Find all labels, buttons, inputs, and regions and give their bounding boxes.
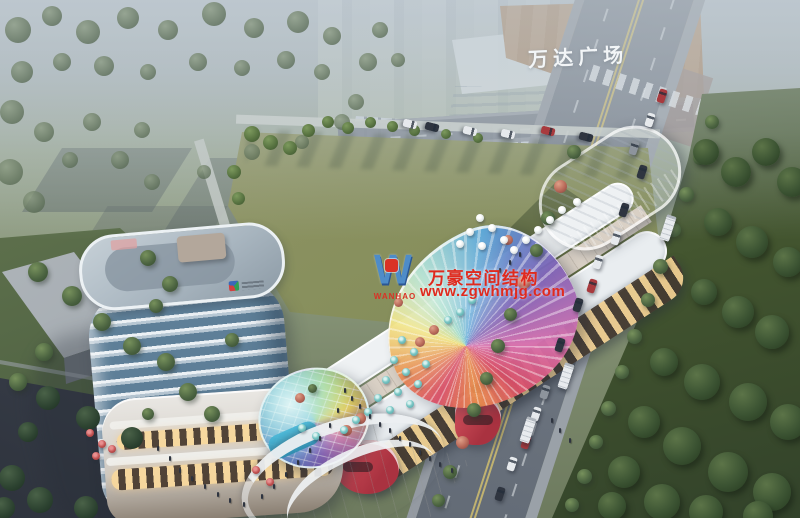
tree <box>93 313 111 331</box>
tree <box>608 456 640 488</box>
tree <box>601 401 616 416</box>
person-dot <box>329 423 332 428</box>
tree <box>467 403 481 417</box>
tree <box>567 145 581 159</box>
car <box>554 337 566 353</box>
tree <box>162 276 178 292</box>
person-dot <box>569 438 572 443</box>
tree <box>491 339 505 353</box>
umbrella <box>386 406 394 414</box>
watermark-url: www.zgwhmjg.com <box>420 283 565 300</box>
tree <box>372 22 388 38</box>
tree <box>225 333 239 347</box>
tree <box>359 53 377 71</box>
umbrella <box>406 400 414 408</box>
tree <box>197 165 211 179</box>
tree <box>314 64 330 80</box>
tree <box>365 117 376 128</box>
umbrella <box>456 308 464 316</box>
person-dot <box>261 494 264 499</box>
tree <box>23 191 45 213</box>
tree <box>348 94 364 110</box>
tree <box>391 53 405 67</box>
umbrella <box>390 356 398 364</box>
car <box>644 112 656 128</box>
tree <box>62 286 82 306</box>
tree <box>121 427 143 449</box>
umbrella <box>298 424 306 432</box>
tree <box>729 383 767 421</box>
person-dot <box>439 462 442 467</box>
tree <box>111 151 129 169</box>
tree <box>777 167 800 197</box>
tree <box>565 498 579 512</box>
umbrella <box>573 198 581 206</box>
tree <box>117 7 139 29</box>
tree <box>76 20 100 44</box>
tree <box>144 174 160 190</box>
tree <box>53 53 71 71</box>
car <box>572 297 584 313</box>
tree <box>441 129 451 139</box>
umbrella <box>92 452 100 460</box>
person-dot <box>285 472 288 477</box>
tree <box>157 353 175 371</box>
car <box>656 88 668 104</box>
tree <box>627 329 642 344</box>
tree <box>244 18 264 38</box>
umbrella <box>476 214 484 222</box>
person-dot <box>191 476 194 481</box>
tree <box>179 383 197 401</box>
umbrella <box>422 360 430 368</box>
person-dot <box>337 408 340 413</box>
tree <box>721 157 751 187</box>
tree <box>263 135 278 150</box>
tree <box>287 11 309 33</box>
tree <box>244 144 260 160</box>
tree <box>598 492 626 518</box>
car <box>462 125 478 136</box>
watermark-brand-latin: WANHAO <box>368 292 422 301</box>
tree <box>158 20 178 40</box>
tree <box>684 364 720 400</box>
car <box>578 131 594 142</box>
tree <box>554 180 567 193</box>
tree <box>283 141 297 155</box>
umbrella <box>98 440 106 448</box>
tree <box>755 315 789 349</box>
tree <box>323 27 341 45</box>
person-dot <box>273 484 276 489</box>
tree <box>342 122 354 134</box>
person-dot <box>204 484 207 489</box>
umbrella <box>108 445 116 453</box>
person-dot <box>451 468 454 473</box>
tree <box>736 226 768 258</box>
tree <box>36 386 60 410</box>
tree <box>134 122 150 138</box>
person-dot <box>243 502 246 507</box>
umbrella <box>252 466 260 474</box>
watermark-logo-badge <box>385 259 398 272</box>
person-dot <box>551 418 554 423</box>
car <box>628 140 640 156</box>
umbrella <box>398 336 406 344</box>
tree <box>641 293 655 307</box>
tree <box>0 497 15 518</box>
tree <box>0 159 23 185</box>
tree <box>429 325 439 335</box>
tree <box>644 484 680 518</box>
person-dot <box>351 396 354 401</box>
tree <box>244 126 260 142</box>
car <box>539 384 551 400</box>
person-dot <box>419 450 422 455</box>
tree <box>689 495 723 518</box>
person-dot <box>309 448 312 453</box>
tree <box>28 262 48 282</box>
umbrella <box>352 416 360 424</box>
tree <box>27 487 53 513</box>
umbrella <box>558 206 566 214</box>
tree <box>308 384 317 393</box>
person-dot <box>389 428 392 433</box>
tree <box>295 135 309 149</box>
tree <box>140 250 156 266</box>
tree <box>752 138 780 166</box>
tree <box>432 494 445 507</box>
tree <box>577 469 592 484</box>
tree <box>142 408 154 420</box>
person-dot <box>169 456 172 461</box>
car <box>506 456 518 472</box>
tree <box>722 296 754 328</box>
tree <box>415 337 425 347</box>
tree <box>232 192 245 205</box>
umbrella <box>340 426 348 434</box>
tree <box>202 2 226 26</box>
umbrella <box>86 429 94 437</box>
person-dot <box>344 388 347 393</box>
car <box>500 128 516 139</box>
tree <box>140 64 156 80</box>
person-dot <box>229 498 232 503</box>
tree <box>295 393 305 403</box>
umbrella <box>402 368 410 376</box>
person-dot <box>359 404 362 409</box>
tree <box>123 337 141 355</box>
tree <box>653 259 668 274</box>
tree <box>76 406 100 430</box>
car <box>610 230 622 246</box>
umbrella <box>488 224 496 232</box>
car <box>494 486 506 502</box>
tree <box>302 124 315 137</box>
umbrella <box>466 228 474 236</box>
umbrella <box>546 216 554 224</box>
umbrella <box>410 348 418 356</box>
umbrella <box>478 242 486 250</box>
tree <box>34 122 54 142</box>
tree <box>149 299 163 313</box>
car <box>402 118 418 129</box>
car <box>540 125 556 136</box>
tree <box>9 373 27 391</box>
tree <box>277 51 295 69</box>
tree <box>704 208 732 236</box>
person-dot <box>559 428 562 433</box>
bus <box>519 416 537 444</box>
tree <box>387 121 398 132</box>
tree <box>480 372 493 385</box>
umbrella <box>414 380 422 388</box>
tree <box>11 61 33 83</box>
tree <box>615 365 629 379</box>
tree <box>650 348 678 376</box>
tree <box>663 427 701 465</box>
tree <box>234 60 250 76</box>
person-dot <box>157 446 160 451</box>
tree <box>189 53 207 71</box>
person-dot <box>429 456 432 461</box>
tree <box>679 187 694 202</box>
person-dot <box>319 436 322 441</box>
tree <box>504 308 517 321</box>
umbrella <box>394 388 402 396</box>
umbrella <box>522 236 530 244</box>
umbrella <box>382 376 390 384</box>
person-dot <box>217 492 220 497</box>
person-dot <box>369 414 372 419</box>
watermark: W WANHAO 万豪空间结构 www.zgwhmjg.com <box>368 250 563 308</box>
tree <box>456 436 469 449</box>
tree <box>770 404 800 440</box>
tree <box>691 279 717 305</box>
tree <box>5 17 31 43</box>
tree <box>693 139 719 165</box>
tree <box>0 465 25 491</box>
tree <box>0 100 24 124</box>
bus <box>557 362 575 390</box>
car <box>592 254 604 270</box>
tree <box>705 115 719 129</box>
umbrella <box>374 394 382 402</box>
tree <box>227 165 241 179</box>
umbrella <box>444 316 452 324</box>
person-dot <box>379 422 382 427</box>
tree <box>35 343 53 361</box>
tree <box>94 56 114 76</box>
umbrella <box>500 236 508 244</box>
tree <box>42 6 62 26</box>
tree <box>628 406 660 438</box>
tree <box>204 406 220 422</box>
tree <box>83 113 101 131</box>
person-dot <box>297 460 300 465</box>
tree <box>62 152 78 168</box>
person-dot <box>409 442 412 447</box>
aerial-rendering-scene: 万达广场 W WANHAO <box>0 0 800 518</box>
tree <box>589 435 603 449</box>
car <box>424 121 440 132</box>
car <box>636 164 648 180</box>
umbrella <box>456 240 464 248</box>
tree <box>74 496 98 518</box>
tree <box>708 452 748 492</box>
car <box>586 278 598 294</box>
tree <box>322 116 334 128</box>
tree <box>18 422 38 442</box>
car <box>618 202 630 218</box>
person-dot <box>179 468 182 473</box>
tree <box>773 247 800 277</box>
person-dot <box>399 436 402 441</box>
umbrella <box>534 226 542 234</box>
